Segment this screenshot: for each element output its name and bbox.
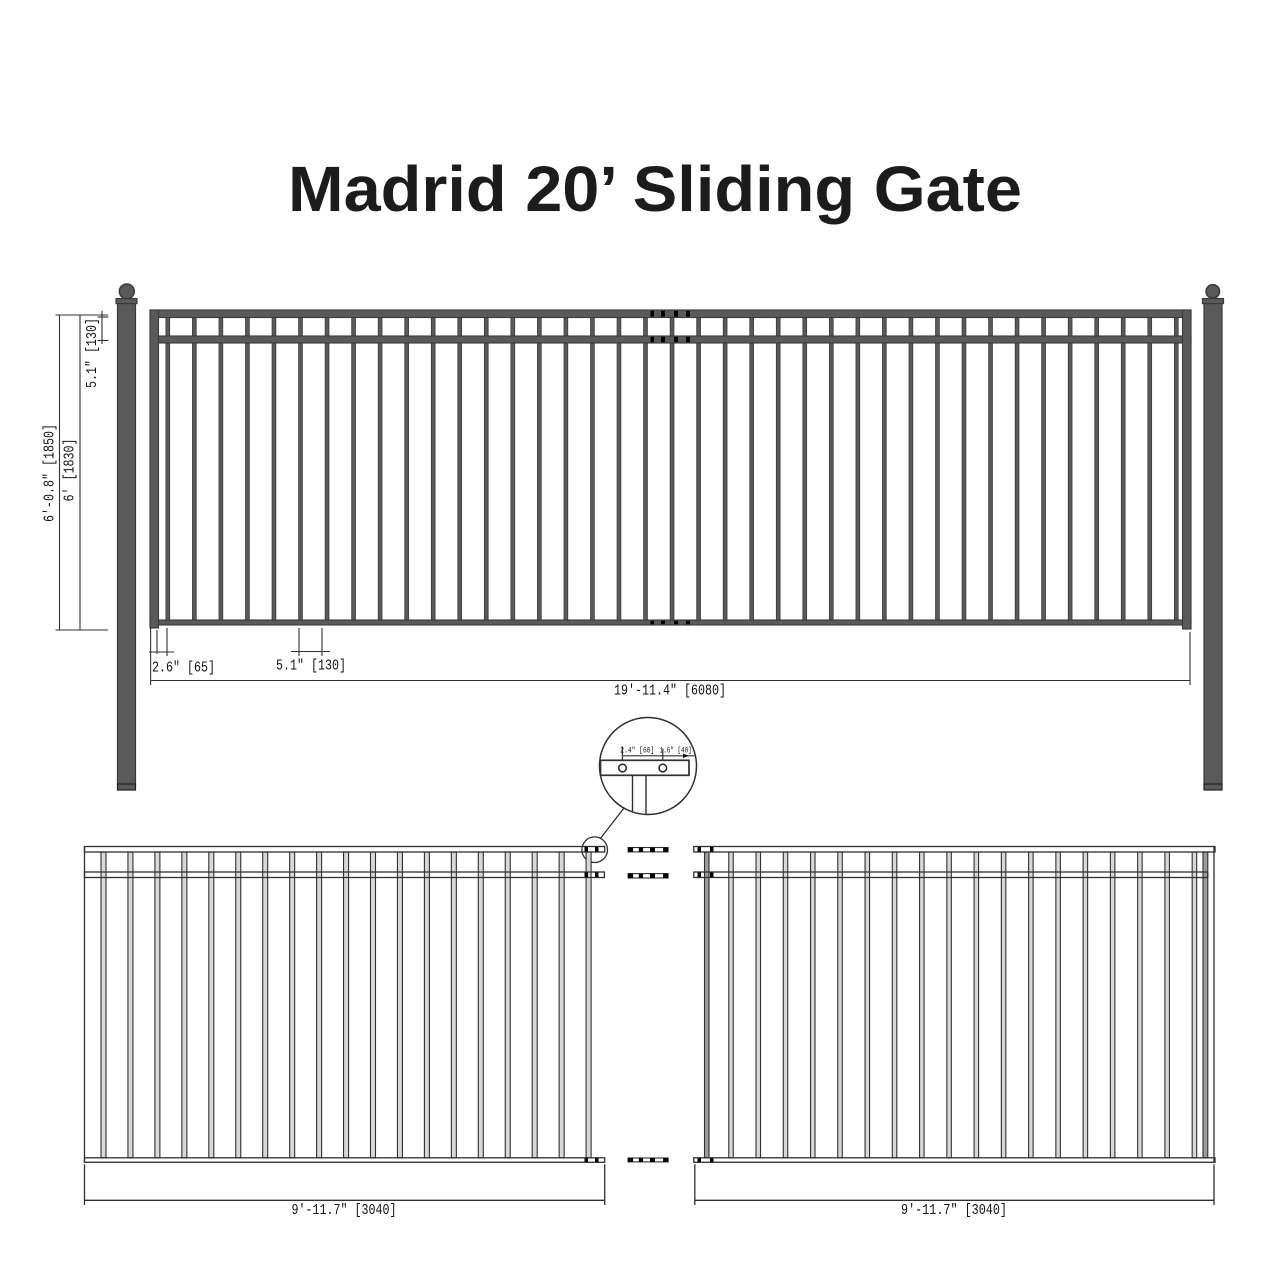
- svg-text:Madrid 20’ Sliding Gate: Madrid 20’ Sliding Gate: [288, 153, 1022, 225]
- svg-text:6' [1830]: 6' [1830]: [62, 439, 79, 502]
- svg-text:2.4" [60]: 2.4" [60]: [620, 746, 654, 755]
- svg-text:5.1" [130]: 5.1" [130]: [84, 318, 101, 388]
- svg-text:9'-11.7" [3040]: 9'-11.7" [3040]: [901, 1202, 1007, 1219]
- svg-text:1.6" [40]: 1.6" [40]: [660, 746, 692, 755]
- svg-text:9'-11.7" [3040]: 9'-11.7" [3040]: [292, 1202, 397, 1219]
- svg-text:5.1" [130]: 5.1" [130]: [276, 658, 346, 675]
- svg-text:19'-11.4" [6080]: 19'-11.4" [6080]: [614, 683, 726, 700]
- svg-text:2.6" [65]: 2.6" [65]: [152, 660, 215, 677]
- svg-text:6'-0.8" [1850]: 6'-0.8" [1850]: [42, 424, 59, 522]
